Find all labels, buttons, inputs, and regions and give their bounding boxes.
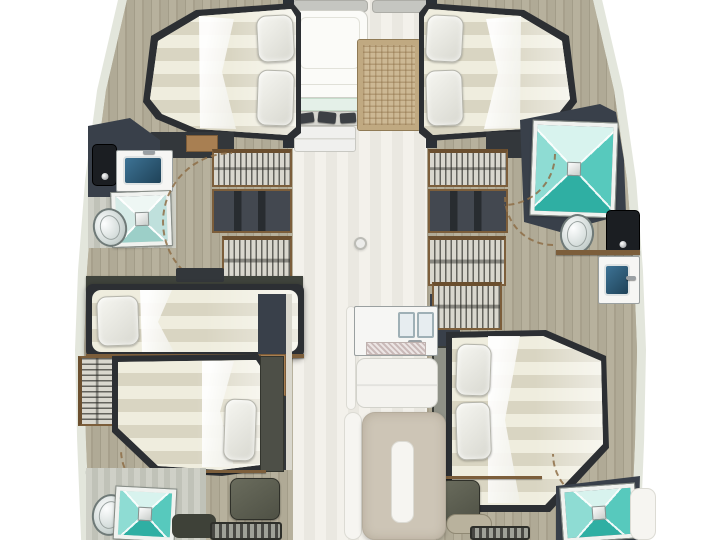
port-fore-faucet [143, 150, 155, 154]
cockpit-table-leaf [391, 441, 414, 523]
woven-deck-hatch [358, 40, 420, 130]
starboard-aft-pillow-2 [455, 401, 492, 460]
console-tile-3 [340, 112, 357, 123]
starboard-aft-pillow-1 [455, 343, 492, 396]
starboard-aft-panel [630, 488, 656, 540]
starboard-fore-pillow-2 [425, 69, 464, 126]
galley-worktop-strip [366, 342, 426, 355]
port-fore-washbasin [123, 156, 163, 185]
forward-sofa [292, 10, 368, 98]
port-saloon-cabinet-upper [258, 294, 288, 354]
starboard-faucet [626, 276, 636, 280]
port-aft-headboard [260, 356, 284, 472]
galley-sink-right [417, 312, 434, 338]
port-saloon-cabinet-edge [286, 294, 292, 470]
port-fore-bath-door [92, 144, 117, 186]
starboard-washbasin [604, 264, 630, 296]
starboard-aft-shower [560, 483, 638, 540]
port-single-pillow [96, 295, 140, 346]
port-aft-wardrobe [78, 356, 115, 426]
forward-shelf-mint [293, 98, 367, 111]
floorplan-canvas [0, 0, 720, 540]
starboard-wardrobe-2 [428, 236, 506, 286]
starboard-aft-wardrobe [432, 282, 502, 330]
starboard-fore-pillow-1 [425, 14, 464, 63]
port-aft-shower [114, 486, 177, 540]
saloon-table-foot [354, 237, 367, 250]
port-fore-pillow-1 [256, 14, 295, 63]
console-tile-2 [317, 111, 336, 124]
starboard-aft-trim [432, 476, 542, 479]
port-aft-pillow [223, 398, 257, 461]
starboard-bath-trim [556, 250, 640, 255]
starboard-wardrobe-1 [428, 149, 508, 187]
port-mid-shelf-box [176, 268, 224, 282]
port-fore-pillow-2 [256, 69, 295, 126]
cockpit-side-bench [344, 412, 362, 540]
saloon-bench [356, 358, 438, 408]
starboard-shelf-cubby [428, 189, 508, 233]
galley-sink-left [398, 312, 415, 338]
port-aft-cabinet [230, 478, 280, 520]
starboard-bath-door [606, 210, 640, 254]
port-aft-drawer [210, 522, 282, 540]
forward-drawer-unit [294, 126, 356, 152]
starboard-aft-drawer [470, 526, 530, 540]
